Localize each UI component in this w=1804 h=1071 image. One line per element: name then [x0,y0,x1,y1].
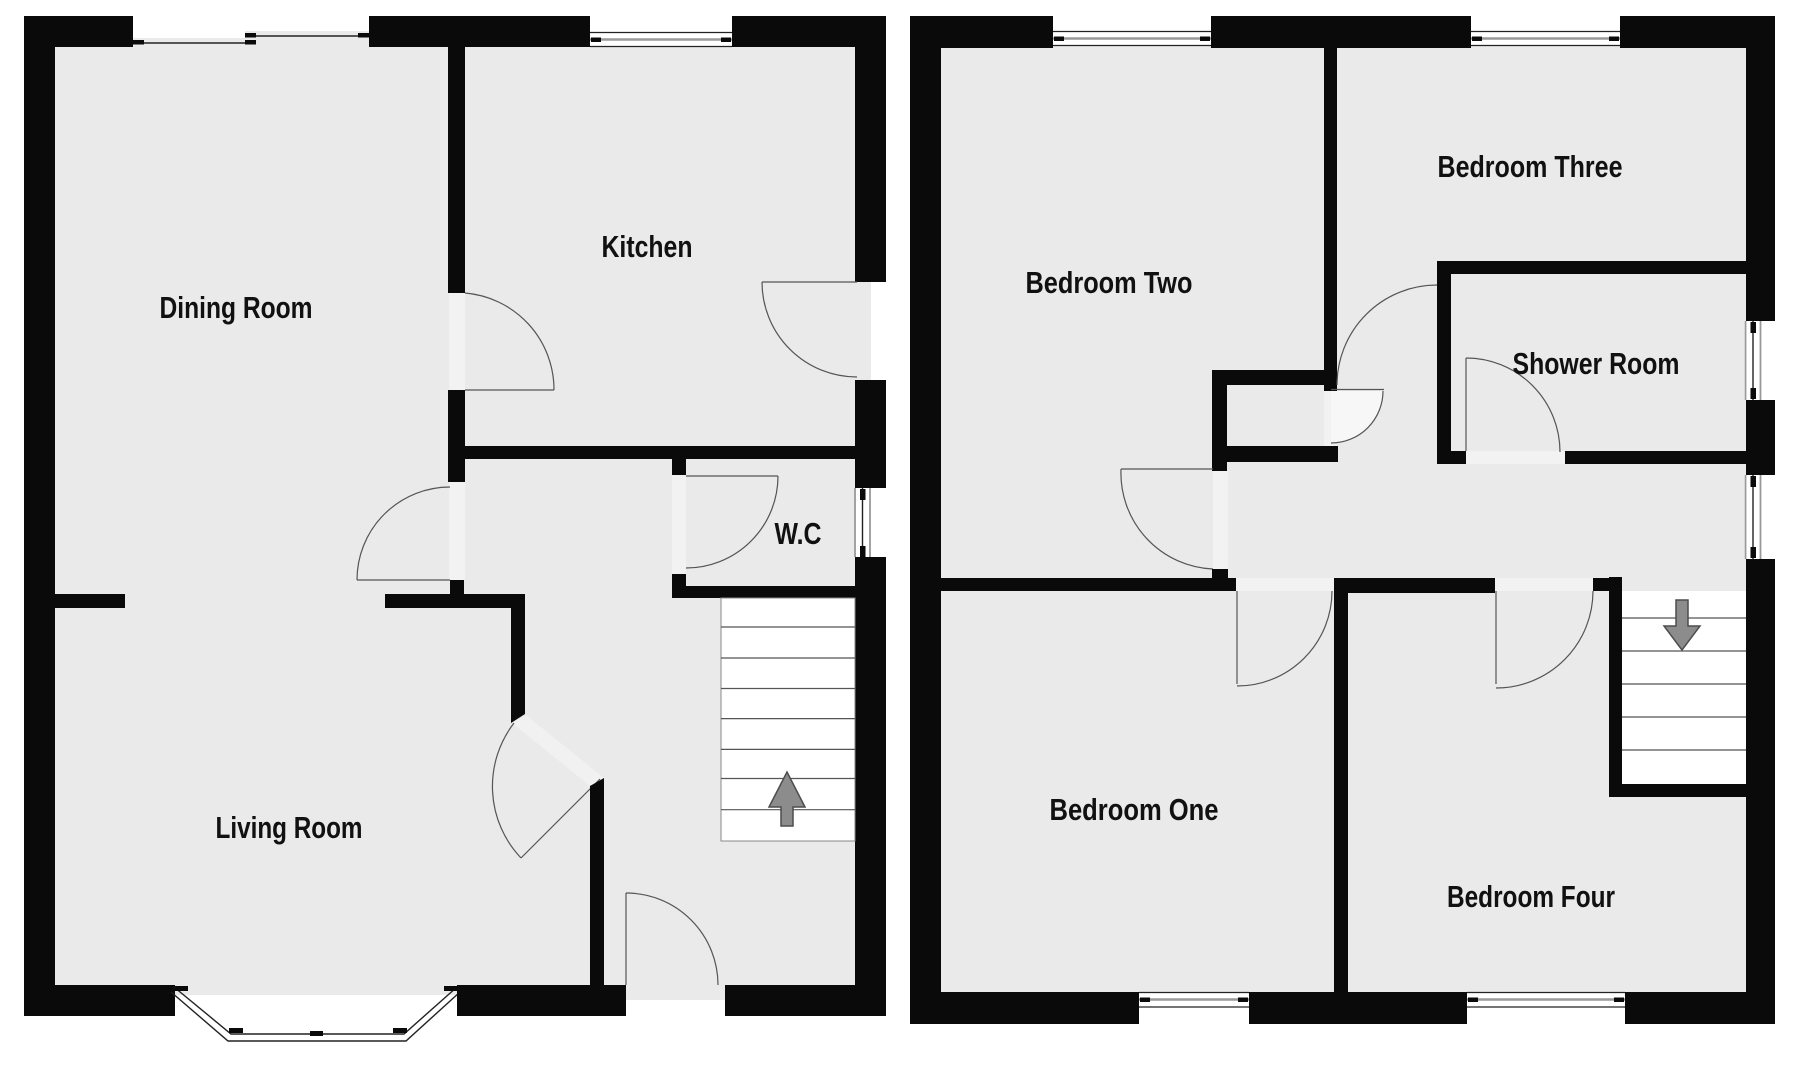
svg-text:Living Room: Living Room [216,810,363,845]
svg-text:Bedroom Two: Bedroom Two [1026,265,1193,300]
svg-text:Kitchen: Kitchen [602,229,693,264]
svg-text:Bedroom Four: Bedroom Four [1447,879,1615,914]
svg-text:Bedroom One: Bedroom One [1050,792,1219,827]
svg-text:Dining Room: Dining Room [160,290,313,325]
svg-text:Bedroom Three: Bedroom Three [1438,149,1623,184]
svg-text:W.C: W.C [775,516,822,551]
svg-text:Shower Room: Shower Room [1513,346,1680,381]
